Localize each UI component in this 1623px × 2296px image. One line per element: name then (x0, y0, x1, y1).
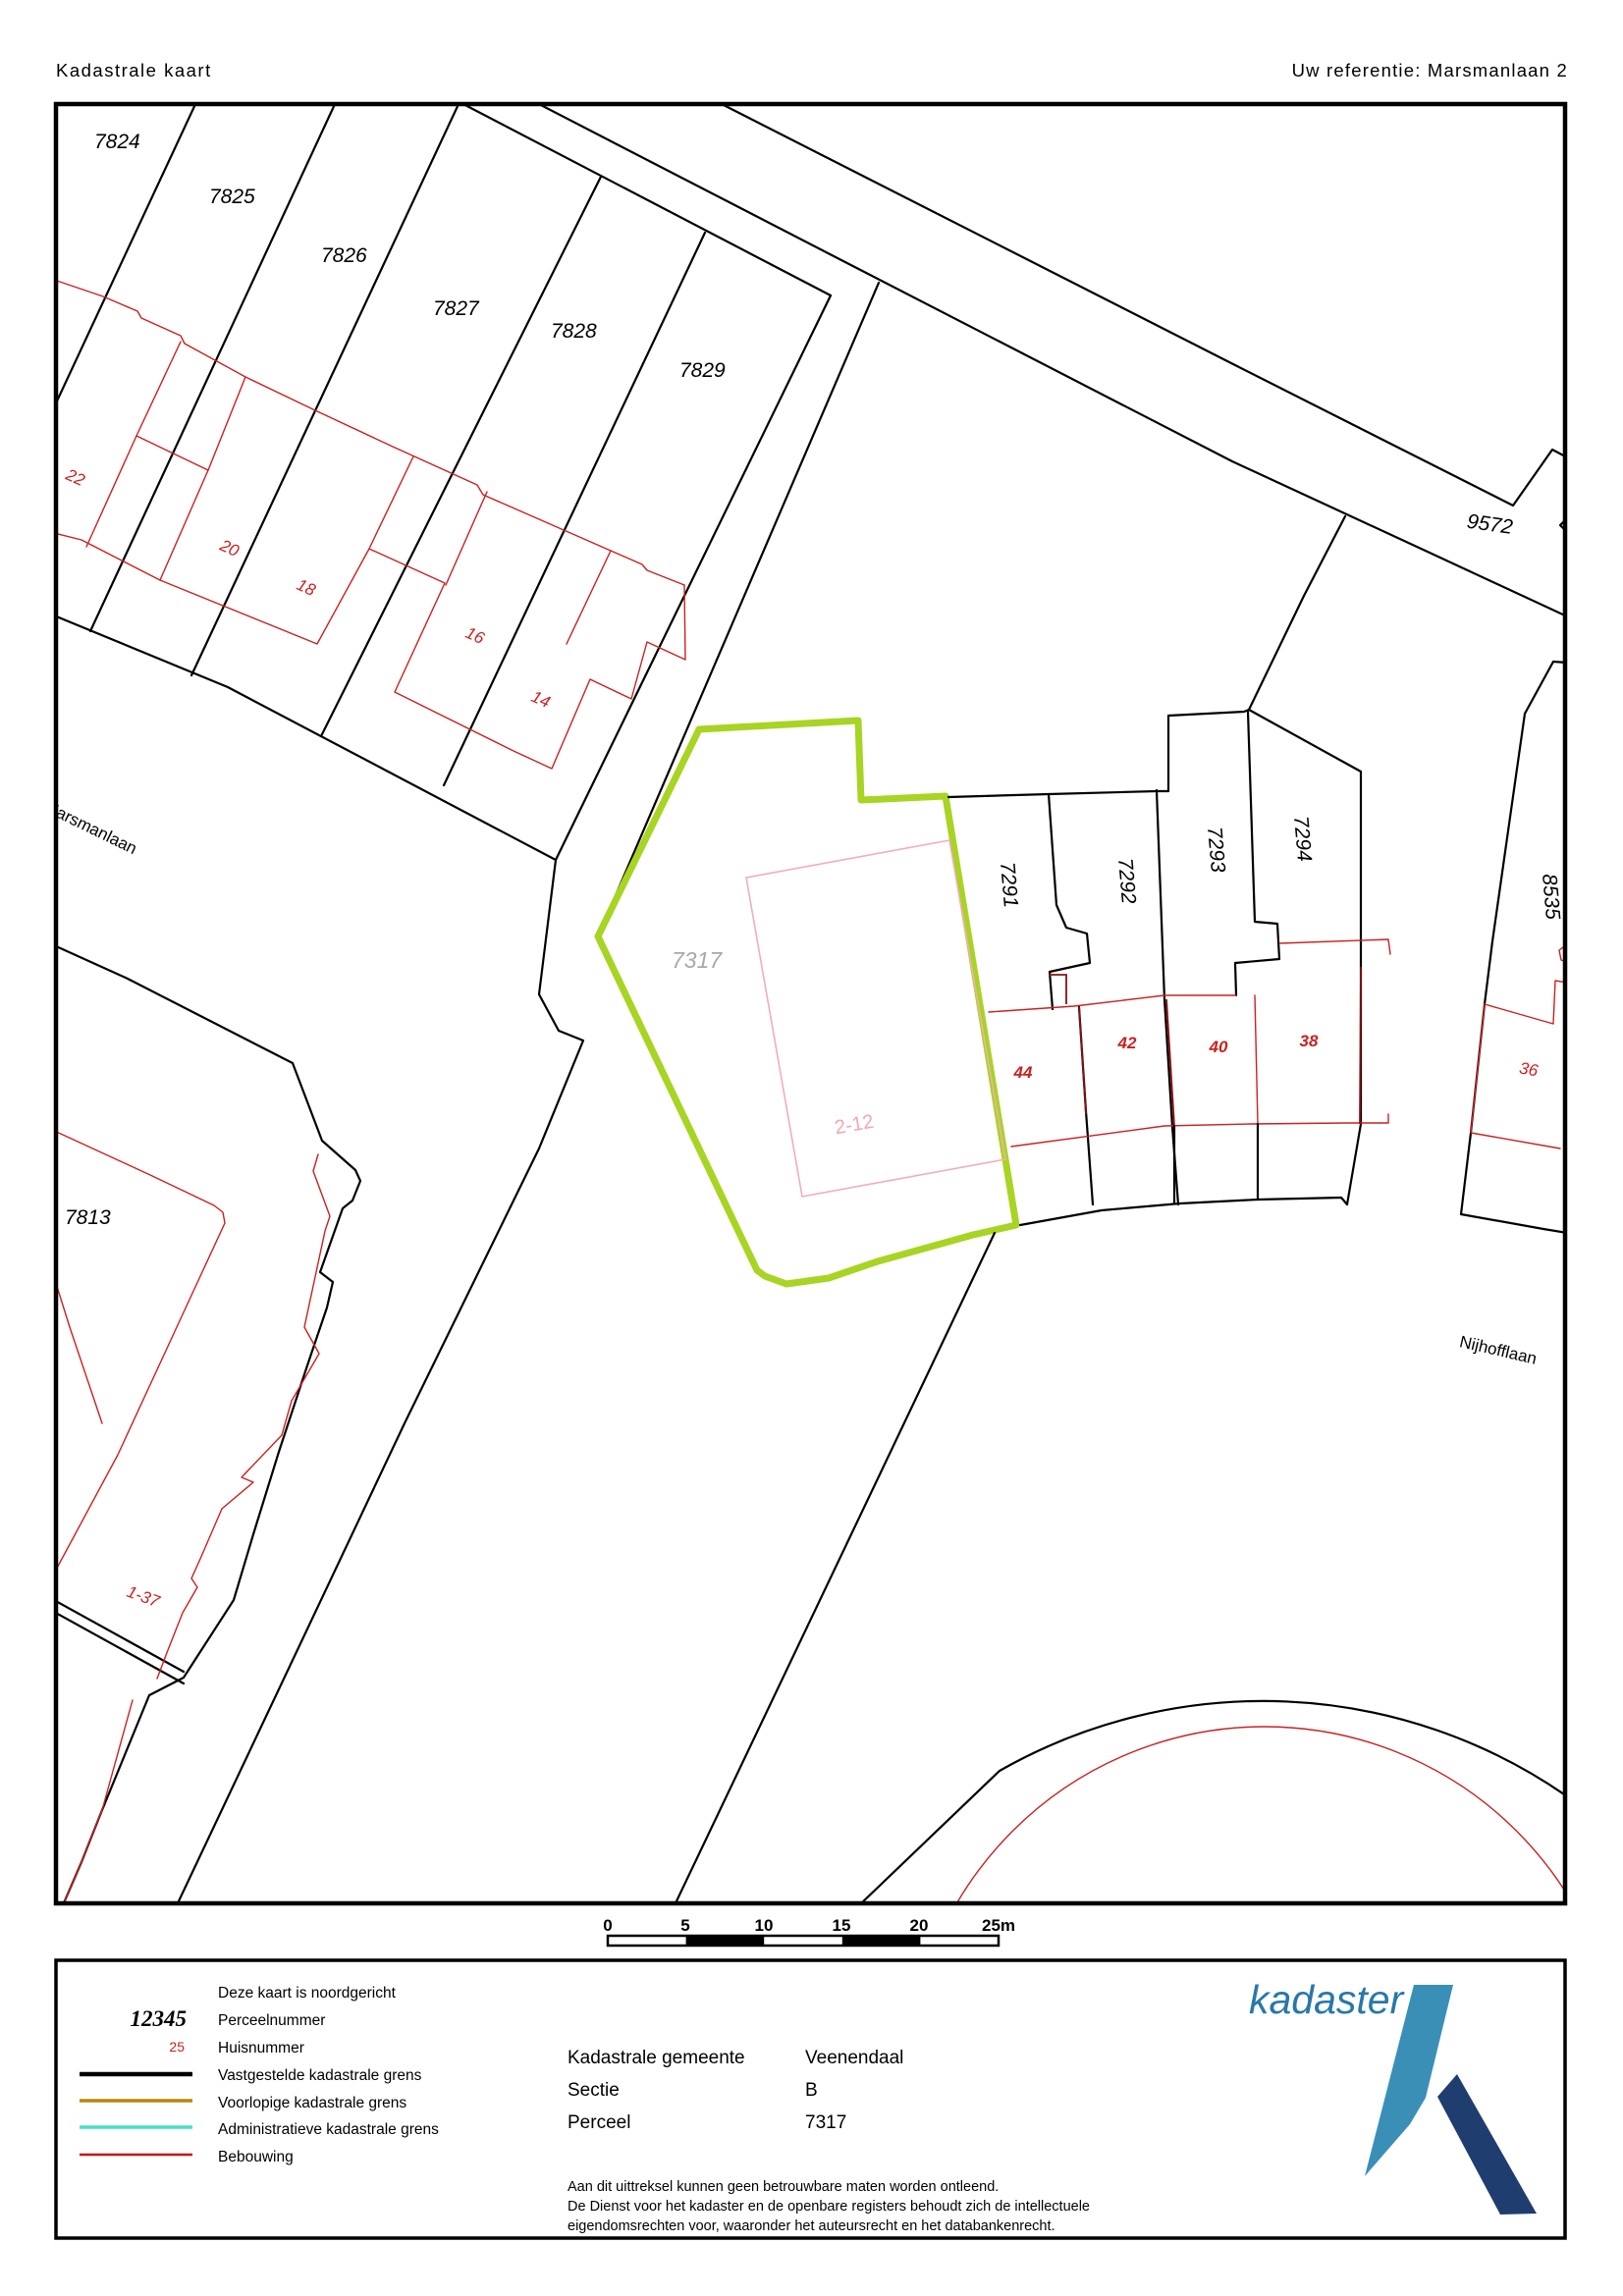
svg-text:Perceelnummer: Perceelnummer (218, 2012, 325, 2029)
svg-text:0: 0 (603, 1916, 612, 1935)
svg-text:25: 25 (169, 2039, 185, 2055)
svg-text:20: 20 (910, 1916, 929, 1935)
svg-text:Uw referentie: Marsmanlaan 2: Uw referentie: Marsmanlaan 2 (1292, 60, 1568, 80)
svg-text:7813: 7813 (65, 1206, 111, 1229)
svg-text:De Dienst voor het kadaster en: De Dienst voor het kadaster en de openba… (568, 2199, 1090, 2215)
svg-text:7317: 7317 (805, 2112, 846, 2133)
svg-text:7291: 7291 (996, 861, 1022, 909)
svg-text:Vastgestelde kadastrale grens: Vastgestelde kadastrale grens (218, 2067, 422, 2084)
svg-text:5: 5 (680, 1916, 689, 1935)
svg-text:44: 44 (1013, 1063, 1033, 1082)
svg-text:Voorlopige kadastrale grens: Voorlopige kadastrale grens (218, 2095, 406, 2111)
svg-text:7824: 7824 (94, 131, 140, 153)
svg-text:25m: 25m (982, 1916, 1015, 1935)
svg-text:kadaster: kadaster (1249, 1977, 1406, 2022)
svg-text:B: B (805, 2080, 818, 2101)
svg-text:Bebouwing: Bebouwing (218, 2149, 294, 2165)
svg-text:Huisnummer: Huisnummer (218, 2040, 304, 2056)
svg-text:7828: 7828 (551, 320, 597, 343)
svg-text:7829: 7829 (679, 359, 726, 382)
svg-text:7292: 7292 (1113, 857, 1140, 905)
svg-text:Perceel: Perceel (568, 2112, 630, 2133)
svg-text:15: 15 (833, 1916, 851, 1935)
svg-text:7827: 7827 (433, 297, 480, 320)
svg-text:7826: 7826 (321, 244, 367, 267)
svg-text:40: 40 (1209, 1038, 1228, 1056)
svg-text:7317: 7317 (672, 947, 723, 973)
svg-text:38: 38 (1300, 1032, 1319, 1050)
svg-text:Deze kaart is noordgericht: Deze kaart is noordgericht (218, 1985, 397, 2002)
svg-text:36: 36 (1518, 1058, 1540, 1080)
svg-text:12345: 12345 (131, 2006, 188, 2031)
svg-text:Veenendaal: Veenendaal (805, 2048, 903, 2068)
svg-text:7293: 7293 (1203, 826, 1229, 874)
svg-text:7825: 7825 (209, 186, 255, 208)
svg-text:8535: 8535 (1538, 873, 1564, 921)
svg-text:Kadastrale kaart: Kadastrale kaart (56, 60, 212, 80)
svg-text:Sectie: Sectie (568, 2080, 620, 2101)
svg-text:42: 42 (1117, 1034, 1137, 1052)
svg-text:Administratieve kadastrale gre: Administratieve kadastrale grens (218, 2121, 439, 2138)
svg-text:Kadastrale gemeente: Kadastrale gemeente (568, 2048, 745, 2068)
svg-text:7294: 7294 (1289, 815, 1316, 863)
svg-text:10: 10 (755, 1916, 774, 1935)
svg-text:eigendomsrechten voor, waarond: eigendomsrechten voor, waaronder het aut… (568, 2218, 1055, 2234)
svg-text:Aan dit uittreksel kunnen geen: Aan dit uittreksel kunnen geen betrouwba… (568, 2179, 999, 2195)
